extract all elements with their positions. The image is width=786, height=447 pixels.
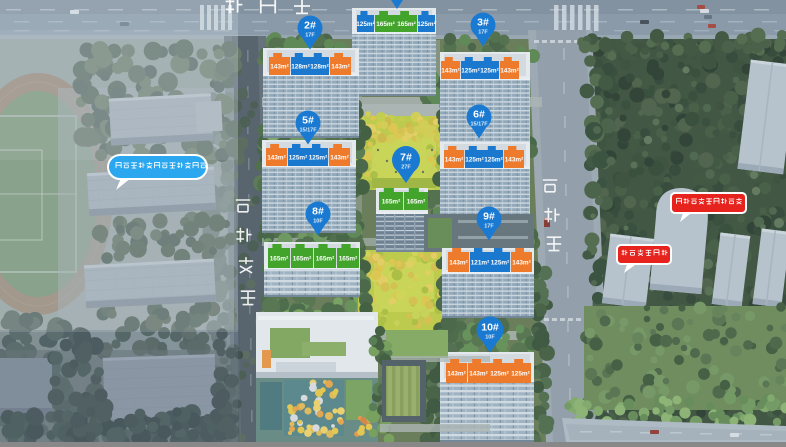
svg-text:17F: 17F: [478, 30, 488, 36]
svg-text:10F: 10F: [313, 219, 323, 225]
svg-text:10#: 10#: [481, 322, 499, 334]
svg-text:2#: 2#: [304, 20, 316, 32]
svg-text:143m²: 143m²: [445, 156, 463, 163]
svg-text:128m²: 128m²: [310, 63, 328, 70]
svg-text:143m²: 143m²: [270, 63, 288, 70]
svg-text:165m²: 165m²: [293, 255, 311, 262]
svg-text:125m²: 125m²: [289, 154, 307, 161]
svg-text:125m²: 125m²: [490, 370, 508, 377]
svg-text:165m²: 165m²: [316, 255, 334, 262]
svg-text:125m²: 125m²: [356, 21, 374, 28]
svg-text:5#: 5#: [302, 115, 314, 127]
svg-text:143m²: 143m²: [441, 67, 459, 74]
svg-text:17F: 17F: [484, 224, 494, 230]
svg-text:15/17F: 15/17F: [299, 128, 317, 134]
svg-text:143m²: 143m²: [505, 156, 523, 163]
svg-text:165m²: 165m²: [382, 198, 400, 205]
svg-text:17F: 17F: [305, 33, 315, 39]
svg-text:143m²: 143m²: [331, 63, 349, 70]
svg-text:125m²: 125m²: [484, 156, 502, 163]
svg-text:143m²: 143m²: [447, 370, 465, 377]
svg-text:125m²: 125m²: [309, 154, 327, 161]
svg-text:143m²: 143m²: [449, 259, 467, 266]
svg-text:143m²: 143m²: [330, 154, 348, 161]
svg-text:125m²: 125m²: [417, 21, 435, 28]
svg-text:125m²: 125m²: [465, 156, 483, 163]
svg-text:165m²: 165m²: [407, 198, 425, 205]
svg-text:128m²: 128m²: [291, 63, 309, 70]
svg-text:143m²: 143m²: [469, 370, 487, 377]
svg-text:165m²: 165m²: [339, 255, 357, 262]
svg-text:7#: 7#: [400, 152, 412, 164]
svg-text:121m²: 121m²: [471, 259, 489, 266]
svg-text:15/17F: 15/17F: [470, 122, 488, 128]
svg-text:125m²: 125m²: [480, 67, 498, 74]
svg-text:125m²: 125m²: [511, 370, 529, 377]
svg-text:143m²: 143m²: [500, 67, 518, 74]
svg-text:143m²: 143m²: [512, 259, 530, 266]
svg-text:165m²: 165m²: [397, 21, 415, 28]
svg-text:165m²: 165m²: [270, 255, 288, 262]
svg-text:125m²: 125m²: [491, 259, 509, 266]
svg-text:6#: 6#: [473, 109, 485, 121]
svg-text:165m²: 165m²: [376, 21, 394, 28]
svg-text:143m²: 143m²: [267, 154, 285, 161]
svg-text:10F: 10F: [485, 335, 495, 341]
svg-text:3#: 3#: [477, 17, 489, 29]
svg-text:27F: 27F: [401, 165, 411, 171]
svg-text:125m²: 125m²: [461, 67, 479, 74]
svg-text:8#: 8#: [312, 206, 324, 218]
svg-text:9#: 9#: [483, 211, 495, 223]
